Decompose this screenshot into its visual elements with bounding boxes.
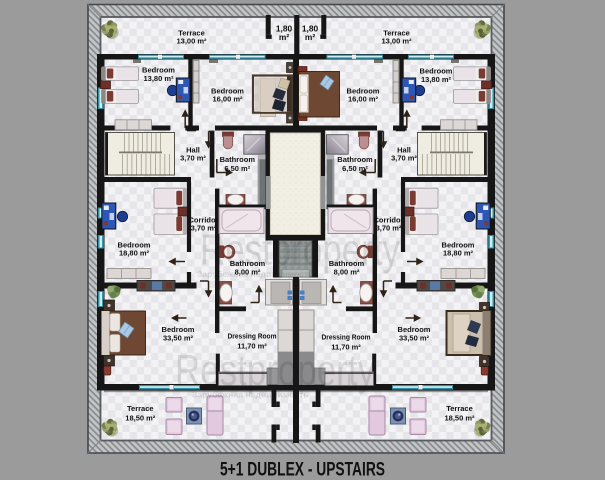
svg-text:11,70 m²: 11,70 m² [331,343,361,352]
svg-text:Restproperty: Restproperty [175,346,375,395]
svg-text:18,80 m²: 18,80 m² [443,249,474,258]
svg-text:8,00 m²: 8,00 m² [334,268,360,277]
svg-text:m²: m² [305,32,315,42]
svg-text:Dressing Room: Dressing Room [322,333,371,342]
svg-text:Bathroom: Bathroom [337,155,373,164]
svg-text:3,70 m²: 3,70 m² [191,224,217,233]
svg-text:8,00 m²: 8,00 m² [235,268,261,277]
svg-text:16,00 m²: 16,00 m² [348,95,379,104]
svg-text:Bathroom: Bathroom [220,155,256,164]
svg-text:13,00 m²: 13,00 m² [381,37,412,46]
svg-text:16,00 m²: 16,00 m² [212,95,243,104]
svg-text:18,50 m²: 18,50 m² [444,414,475,423]
svg-text:33,50 m²: 33,50 m² [163,334,194,343]
svg-text:18,50 m²: 18,50 m² [125,414,156,423]
svg-text:6,50 m²: 6,50 m² [224,164,250,173]
svg-text:33,50 m²: 33,50 m² [399,334,430,343]
svg-text:3,70 m²: 3,70 m² [391,154,417,163]
svg-text:5+1 DUBLEX - UPSTAIRS: 5+1 DUBLEX - UPSTAIRS [220,460,385,480]
svg-text:Зарубежная недвижимость: Зарубежная недвижимость [192,390,309,400]
svg-text:13,80 m²: 13,80 m² [143,74,174,83]
svg-text:11,70 m²: 11,70 m² [237,342,267,351]
svg-text:13,00 m²: 13,00 m² [176,37,207,46]
svg-text:6,50 m²: 6,50 m² [342,164,368,173]
svg-text:13,80 m²: 13,80 m² [421,75,452,84]
svg-text:18,80 m²: 18,80 m² [119,249,150,258]
svg-text:m²: m² [279,32,289,42]
svg-text:Terrace: Terrace [127,404,154,413]
svg-text:3,70 m²: 3,70 m² [180,154,206,163]
svg-text:3,70 m²: 3,70 m² [376,224,402,233]
svg-text:Dressing Room: Dressing Room [228,332,277,341]
svg-text:Terrace: Terrace [446,404,473,413]
